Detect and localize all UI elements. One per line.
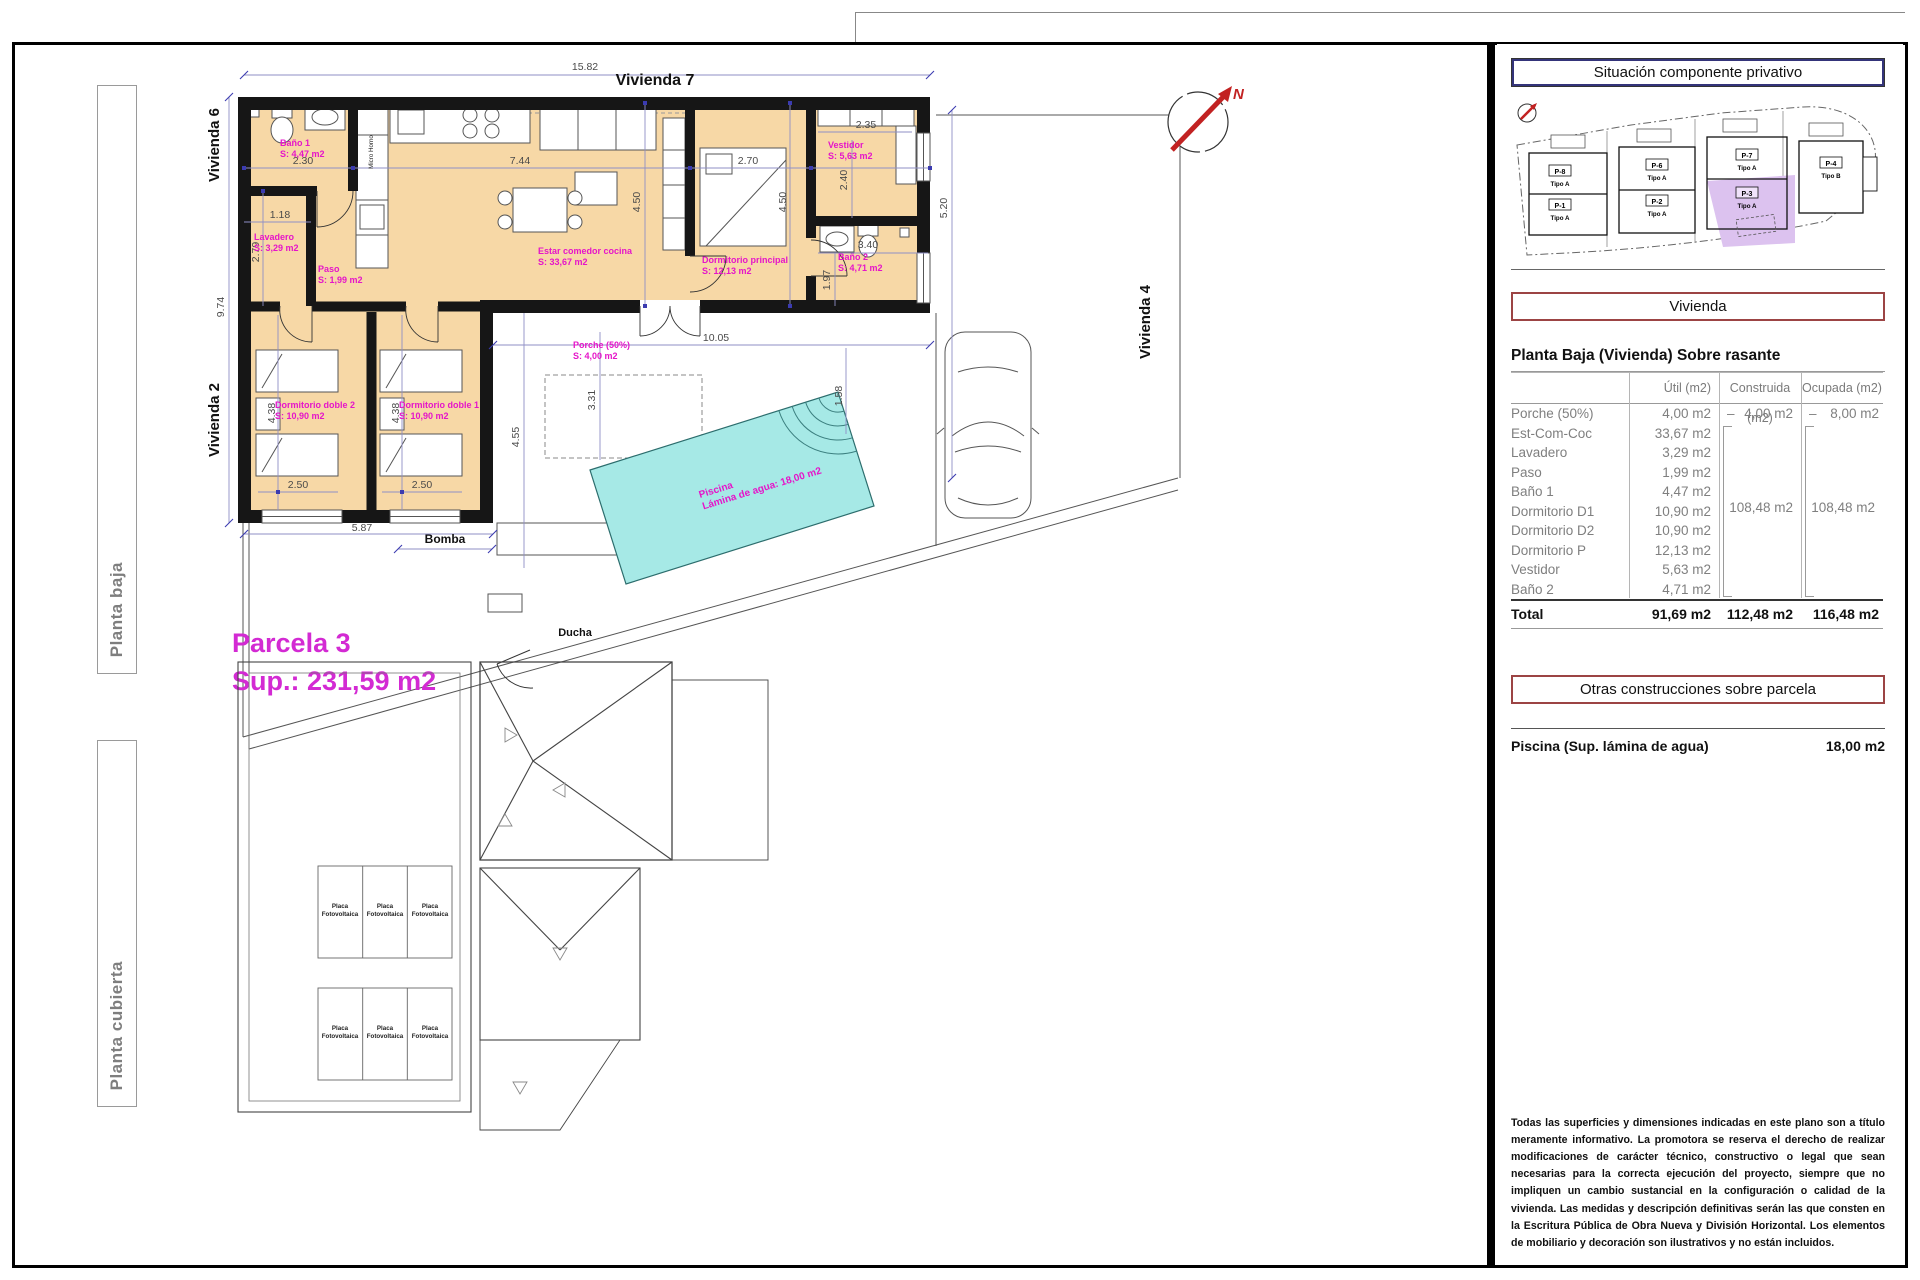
room-area: S: 1,99 m2 [318,275,363,285]
site-blocks [1529,137,1877,235]
room-label: Paso [318,264,340,274]
bomba-label: Bomba [425,532,466,546]
room-label: Dormitorio doble 1 [399,400,479,410]
piscina-label: Piscina (Sup. lámina de agua) [1511,738,1709,754]
pv-panel-label: Fotovoltaica [367,1033,404,1040]
row-ocupada: 8,00 m2 [1830,404,1879,424]
table-separator [1801,373,1802,598]
pv-panel-label: Placa [332,1025,349,1032]
north-label: N [1233,86,1245,103]
row-util: 4,00 m2 [1629,404,1719,424]
dim-text: 7.44 [510,155,531,167]
pv-panel-label: Fotovoltaica [367,911,404,918]
row-name: Est-Com-Coc [1511,424,1629,444]
table-row: Dormitorio D2 10,90 m2 [1511,521,1883,541]
row-name: Baño 2 [1511,580,1629,600]
row-util: 12,13 m2 [1629,541,1719,561]
table-row: Porche (50%) 4,00 m2 –4,00 m2 –8,00 m2 [1511,404,1883,424]
row-name: Paso [1511,463,1629,483]
room-area: S: 10,90 m2 [399,411,449,421]
row-name: Dormitorio D1 [1511,502,1629,522]
room-label: Lavadero [254,232,295,242]
porch-area: S: 4,00 m2 [573,351,618,361]
parcel-id: P-7 [1742,153,1753,160]
dim-text: 5.87 [352,522,373,534]
dim-text: 2.35 [856,119,877,131]
table-row: Dormitorio P 12,13 m2 [1511,541,1883,561]
parcel-id: P-8 [1555,169,1566,176]
table-row: Lavadero 3,29 m2 [1511,443,1883,463]
dim-text: 10.05 [703,332,729,344]
col-header-util: Útil (m2) [1629,373,1719,403]
row-util: 5,63 m2 [1629,560,1719,580]
row-name: Porche (50%) [1511,404,1629,424]
dim-text: 9.74 [215,297,227,318]
table-row: Paso 1,99 m2 [1511,463,1883,483]
table-row: Baño 2 4,71 m2 [1511,580,1883,600]
parcel-id: P-3 [1742,191,1753,198]
room-area: S: 12,13 m2 [702,266,752,276]
pv-panel-label: Placa [422,1025,439,1032]
vivienda7-label: Vivienda 7 [616,72,695,89]
row-name: Vestidor [1511,560,1629,580]
construida-group-value: 108,48 m2 [1719,500,1801,515]
col-header-construida: Construida (m2) [1719,373,1801,403]
total-util: 91,69 m2 [1629,601,1719,628]
info-panel: Situación componente privativo [1497,44,1903,1264]
roof-plan [238,662,768,1130]
pv-panel-label: Fotovoltaica [322,911,359,918]
table-total-row: Total 91,69 m2 112,48 m2 116,48 m2 [1511,599,1883,629]
site-location-map: P-8 Tipo A P-1 Tipo A P-6 Tipo A P-2 Tip… [1511,95,1883,265]
dim-text: 1.97 [821,270,833,291]
dim-text: 2.50 [412,479,433,491]
row-util: 10,90 m2 [1629,521,1719,541]
room-area: S: 10,90 m2 [275,411,325,421]
row-name: Lavadero [1511,443,1629,463]
parcel-tipo: Tipo A [1551,215,1570,222]
parcel-id: P-4 [1826,161,1837,168]
porch-label: Porche (50%) [573,340,630,350]
pv-panel-label: Placa [377,1025,394,1032]
total-label: Total [1511,601,1629,628]
dim-text: 3.31 [586,390,598,411]
row-construida: 4,00 m2 [1744,404,1793,424]
vivienda-title: Vivienda [1669,298,1726,315]
parcela-sup: Sup.: 231,59 m2 [232,666,436,696]
parcela-title: Parcela 3 [232,628,351,658]
dim-text: 3.40 [858,239,879,251]
vivienda6-label: Vivienda 6 [206,108,223,182]
pv-panel-label: Placa [377,903,394,910]
room-area: S: 4,71 m2 [838,263,883,273]
highlighted-parcel-p3 [1707,175,1795,247]
table-separator [1719,373,1720,598]
row-name: Baño 1 [1511,482,1629,502]
pool: Piscina Lámina de agua: 18,00 m2 [590,392,874,584]
plan-sheet: { "sheet": { "planta_baja_label": "Plant… [0,0,1920,1280]
dim-text: 4.50 [631,192,643,213]
row-name: Dormitorio D2 [1511,521,1629,541]
mini-compass-icon [1518,103,1537,122]
total-construida: 112,48 m2 [1719,601,1801,628]
otras-title-box: Otras construcciones sobre parcela [1511,675,1885,704]
dim-text: 5.20 [938,198,950,219]
otras-title: Otras construcciones sobre parcela [1580,681,1816,698]
parcel-id: P-2 [1652,199,1663,206]
pv-panel-label: Fotovoltaica [412,1033,449,1040]
parcel-tipo: Tipo A [1648,211,1667,218]
room-label: Vestidor [828,140,864,150]
dim-text: 1.58 [833,386,845,407]
parcel-tipo: Tipo A [1738,203,1757,210]
row-util: 1,99 m2 [1629,463,1719,483]
row-util: 4,71 m2 [1629,580,1719,600]
row-name: Dormitorio P [1511,541,1629,561]
row-util: 33,67 m2 [1629,424,1719,444]
parcel-tipo: Tipo A [1551,181,1570,188]
disclaimer-text: Todas las superficies y dimensiones indi… [1511,1115,1885,1252]
room-area: S: 4,47 m2 [280,149,325,159]
surfaces-table: Útil (m2) Construida (m2) Ocupada (m2) P… [1511,372,1883,629]
north-compass-icon: N [1168,86,1245,152]
parcel-id: P-1 [1555,203,1566,210]
vivienda2-label: Vivienda 2 [206,383,223,457]
pv-panel-label: Fotovoltaica [412,911,449,918]
room-label: Estar comedor cocina [538,246,633,256]
dim-text: 4.50 [777,192,789,213]
pv-panel-label: Fotovoltaica [322,1033,359,1040]
table-row: Vestidor 5,63 m2 [1511,560,1883,580]
table-separator [1629,373,1630,598]
table-header-row: Útil (m2) Construida (m2) Ocupada (m2) [1511,373,1883,404]
dim-text: 2.40 [838,170,850,191]
dim-text: 2.50 [288,479,309,491]
row-dash: – [1727,404,1735,424]
dim-text: 1.18 [270,209,291,221]
table-title: Planta Baja (Vivienda) Sobre rasante [1511,347,1885,372]
ocupada-group-value: 108,48 m2 [1801,500,1883,515]
ducha-label: Ducha [558,627,593,639]
situacion-title: Situación componente privativo [1594,64,1802,81]
parcel-tipo: Tipo A [1738,165,1757,172]
row-util: 10,90 m2 [1629,502,1719,522]
parcel-id: P-6 [1652,163,1663,170]
dim-text: 2.70 [738,155,759,167]
floor-plan-drawing: Piscina Lámina de agua: 18,00 m2 [0,0,1490,1280]
parcel-tipo: Tipo B [1821,173,1841,180]
dim-text: 15.82 [572,61,598,73]
parcel-tipo: Tipo A [1648,175,1667,182]
pv-panel-label: Placa [332,903,349,910]
table-row: Est-Com-Coc 33,67 m2 [1511,424,1883,444]
vivienda4-label: Vivienda 4 [1137,284,1154,359]
kitchen-unit-label: Micro Horno [368,135,375,169]
room-area: S: 33,67 m2 [538,257,588,267]
row-dash: – [1809,404,1817,424]
room-label: Dormitorio doble 2 [275,400,355,410]
site-map-rule [1511,269,1885,270]
room-label: Baño 2 [838,252,868,262]
total-ocupada: 116,48 m2 [1801,601,1883,628]
piscina-row: Piscina (Sup. lámina de agua) 18,00 m2 [1511,728,1885,754]
situacion-title-box: Situación componente privativo [1511,58,1885,87]
pv-panel-label: Placa [422,903,439,910]
room-area: S: 3,29 m2 [254,243,299,253]
gate-door-arc [497,650,533,688]
row-util: 3,29 m2 [1629,443,1719,463]
room-area: S: 5,63 m2 [828,151,873,161]
row-util: 4,47 m2 [1629,482,1719,502]
vivienda-title-box: Vivienda [1511,292,1885,321]
table-row: Baño 1 4,47 m2 [1511,482,1883,502]
col-header-ocupada: Ocupada (m2) [1801,373,1883,403]
room-label: Baño 1 [280,138,310,148]
room-label: Dormitorio principal [702,255,788,265]
dim-text: 4.55 [510,427,522,448]
piscina-value: 18,00 m2 [1826,738,1885,754]
